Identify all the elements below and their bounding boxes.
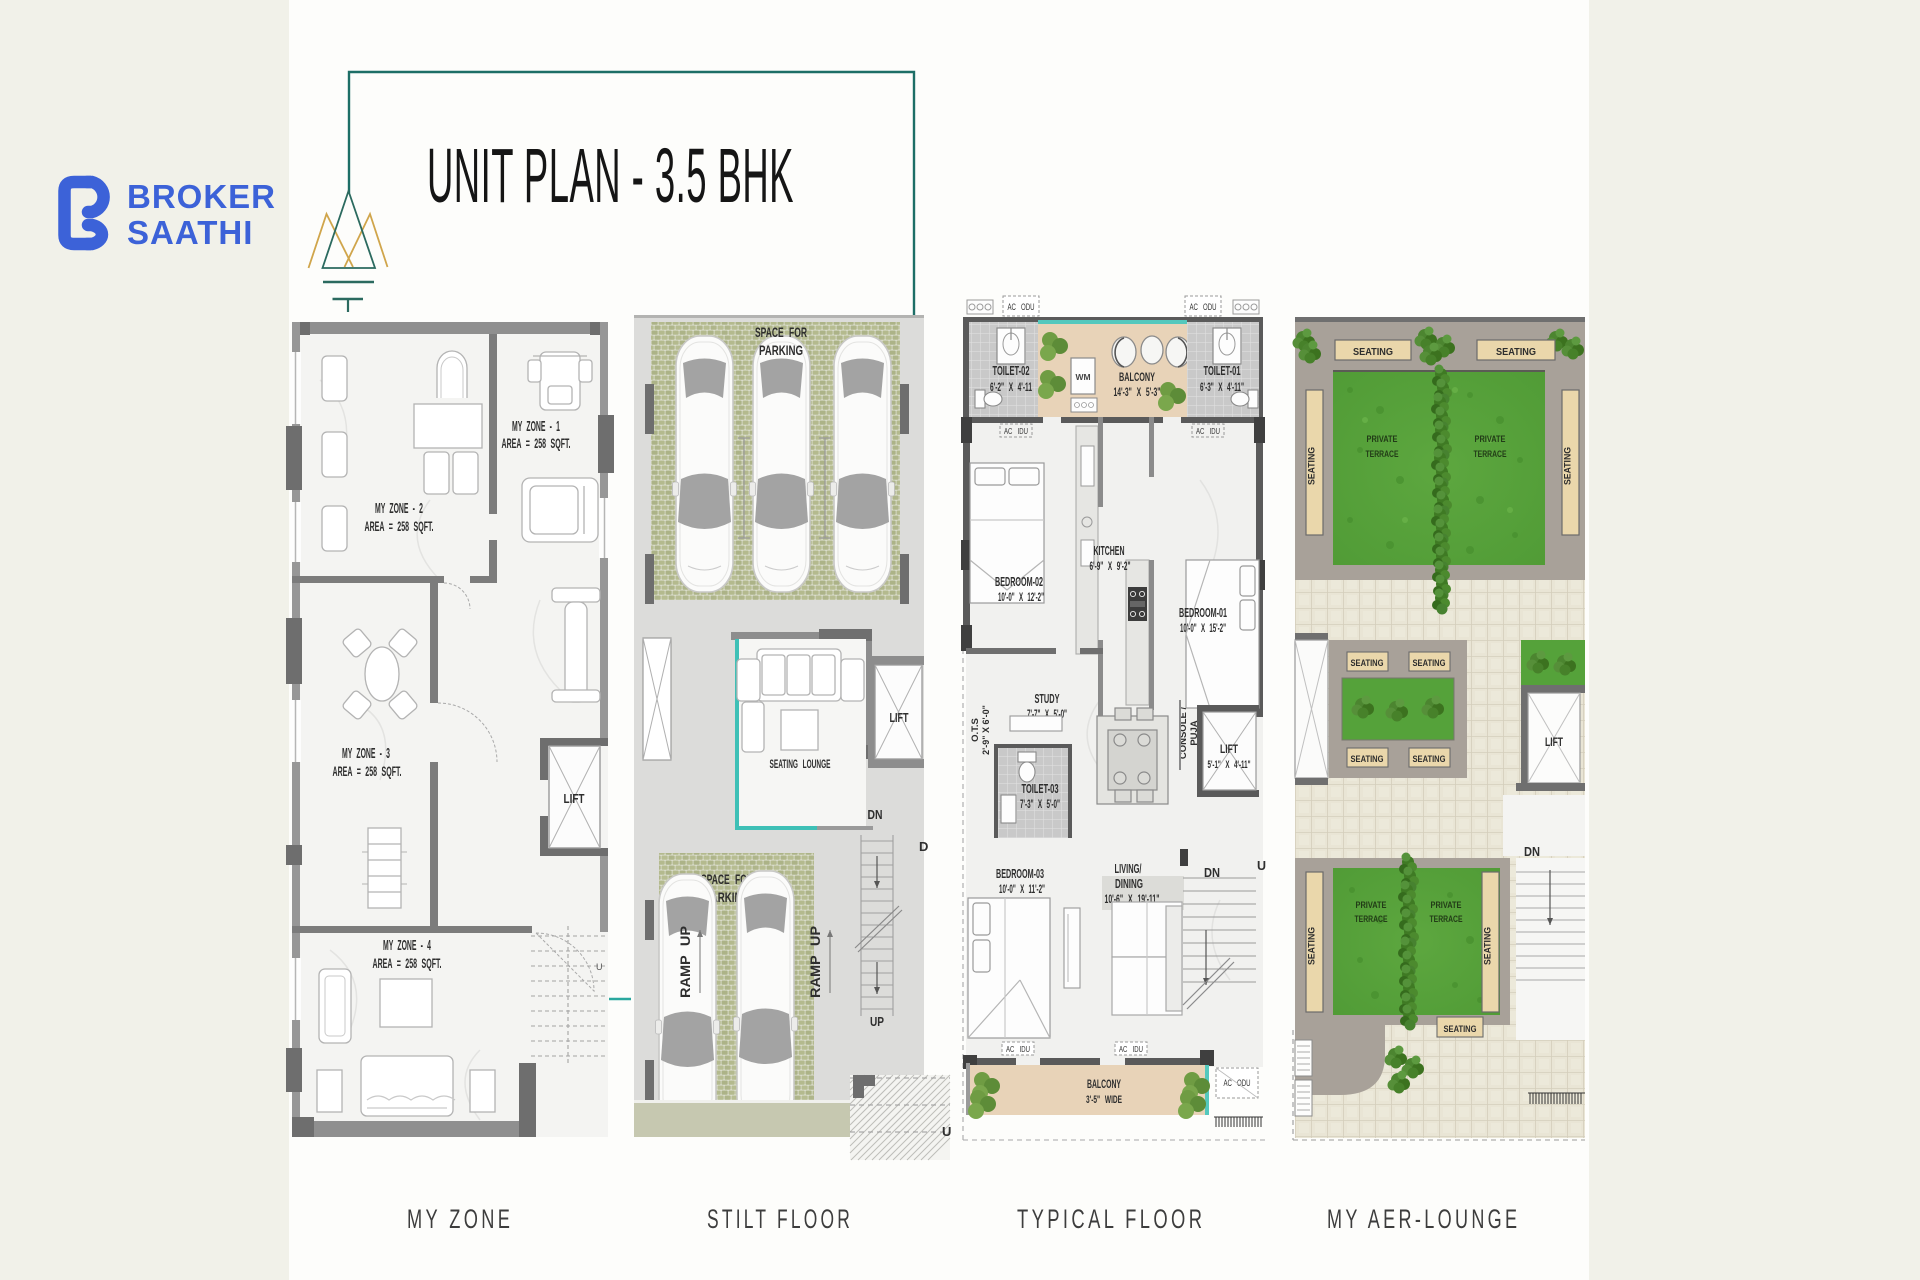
svg-text:AC IDU: AC IDU: [1006, 1044, 1030, 1054]
svg-text:7'-3" X 5'-0": 7'-3" X 5'-0": [1020, 797, 1060, 811]
svg-text:BEDROOM-03: BEDROOM-03: [996, 866, 1044, 881]
svg-text:SEATING: SEATING: [1351, 658, 1384, 668]
svg-text:6'-3" X 4'-11": 6'-3" X 4'-11": [1200, 380, 1244, 394]
svg-text:SEATING: SEATING: [1496, 346, 1536, 358]
svg-text:SEATING: SEATING: [1307, 447, 1318, 485]
svg-text:TERRACE: TERRACE: [1474, 449, 1507, 460]
svg-text:DINING: DINING: [1115, 877, 1143, 891]
svg-text:SEATING: SEATING: [1307, 927, 1318, 965]
svg-text:U: U: [596, 962, 603, 972]
svg-text:SEATING: SEATING: [1413, 658, 1446, 668]
svg-text:AREA = 258 SQFT.: AREA = 258 SQFT.: [373, 955, 442, 971]
svg-text:BEDROOM-02: BEDROOM-02: [995, 574, 1043, 589]
svg-text:DN: DN: [1204, 866, 1220, 880]
svg-text:UP: UP: [870, 1014, 884, 1029]
svg-text:BEDROOM-01: BEDROOM-01: [1179, 605, 1227, 620]
svg-text:5'-1" X 4'-11": 5'-1" X 4'-11": [1208, 759, 1251, 771]
svg-text:LIFT: LIFT: [890, 711, 909, 725]
svg-text:TERRACE: TERRACE: [1355, 914, 1388, 925]
svg-text:TOILET-01: TOILET-01: [1204, 363, 1241, 378]
svg-text:2'-9" X 6'-0": 2'-9" X 6'-0": [981, 705, 991, 755]
svg-text:WM: WM: [1075, 372, 1090, 382]
svg-text:U: U: [1257, 859, 1266, 873]
svg-text:AREA = 258 SQFT.: AREA = 258 SQFT.: [333, 763, 402, 779]
svg-text:SEATING: SEATING: [1563, 447, 1574, 485]
svg-text:AREA = 258 SQFT.: AREA = 258 SQFT.: [365, 518, 434, 534]
svg-text:10'-0" X 15'-2": 10'-0" X 15'-2": [1180, 621, 1226, 635]
svg-text:SEATING: SEATING: [1483, 927, 1494, 965]
svg-text:SPACE FOR: SPACE FOR: [755, 324, 807, 340]
svg-text:10'-0" X 11'-2": 10'-0" X 11'-2": [999, 882, 1045, 896]
svg-text:MY ZONE - 4: MY ZONE - 4: [383, 937, 431, 954]
svg-text:SEATING: SEATING: [1444, 1024, 1477, 1034]
svg-text:LIFT: LIFT: [1545, 735, 1563, 749]
svg-text:DN: DN: [868, 807, 883, 822]
svg-text:RAMP UP: RAMP UP: [808, 926, 823, 998]
svg-text:MY ZONE - 1: MY ZONE - 1: [512, 418, 560, 435]
svg-text:TOILET-02: TOILET-02: [993, 363, 1030, 378]
svg-text:AC IDU: AC IDU: [1119, 1044, 1143, 1054]
svg-text:BROKER: BROKER: [127, 178, 276, 215]
svg-text:AC ODU: AC ODU: [1008, 302, 1035, 312]
svg-text:PRIVATE: PRIVATE: [1356, 900, 1387, 911]
svg-text:AC ODU: AC ODU: [1190, 302, 1217, 312]
svg-text:STUDY: STUDY: [1035, 692, 1060, 706]
svg-text:MY ZONE - 3: MY ZONE - 3: [342, 745, 390, 762]
svg-text:TERRACE: TERRACE: [1366, 449, 1399, 460]
svg-text:KITCHEN: KITCHEN: [1094, 544, 1125, 558]
svg-text:DN: DN: [1524, 845, 1540, 859]
svg-text:LIFT: LIFT: [564, 791, 585, 806]
svg-text:MY ZONE - 2: MY ZONE - 2: [375, 500, 423, 517]
svg-text:SEATING: SEATING: [1351, 754, 1384, 764]
svg-text:AC IDU: AC IDU: [1004, 426, 1028, 436]
svg-text:PRIVATE: PRIVATE: [1475, 434, 1506, 445]
svg-text:RAMP UP: RAMP UP: [678, 926, 693, 998]
svg-text:SEATING: SEATING: [1413, 754, 1446, 764]
svg-text:3'-5" WIDE: 3'-5" WIDE: [1086, 1094, 1122, 1106]
svg-text:TOILET-03: TOILET-03: [1022, 781, 1059, 796]
svg-text:6'-2" X 4'-11: 6'-2" X 4'-11: [990, 380, 1032, 394]
svg-text:10'-0" X 12'-2": 10'-0" X 12'-2": [998, 590, 1044, 604]
svg-text:TERRACE: TERRACE: [1430, 914, 1463, 925]
svg-text:LIFT: LIFT: [1220, 742, 1238, 756]
svg-text:SEATING LOUNGE: SEATING LOUNGE: [770, 759, 831, 771]
svg-text:SEATING: SEATING: [1353, 346, 1393, 358]
svg-text:PRIVATE: PRIVATE: [1431, 900, 1462, 911]
svg-text:SAATHI: SAATHI: [127, 214, 253, 251]
svg-text:14'-3" X 5'-3": 14'-3" X 5'-3": [1114, 387, 1161, 399]
svg-text:AC IDU: AC IDU: [1196, 426, 1220, 436]
svg-text:AREA = 258 SQFT.: AREA = 258 SQFT.: [502, 435, 571, 451]
svg-text:BALCONY: BALCONY: [1087, 1077, 1121, 1091]
svg-text:BALCONY: BALCONY: [1119, 370, 1155, 384]
svg-text:PRIVATE: PRIVATE: [1367, 434, 1398, 445]
svg-text:O.T.S: O.T.S: [970, 718, 981, 742]
svg-text:D: D: [919, 839, 928, 854]
svg-text:PARKING: PARKING: [759, 342, 803, 358]
svg-text:6'-9" X 9'-2": 6'-9" X 9'-2": [1090, 561, 1131, 573]
svg-text:LIVING/: LIVING/: [1115, 862, 1142, 876]
